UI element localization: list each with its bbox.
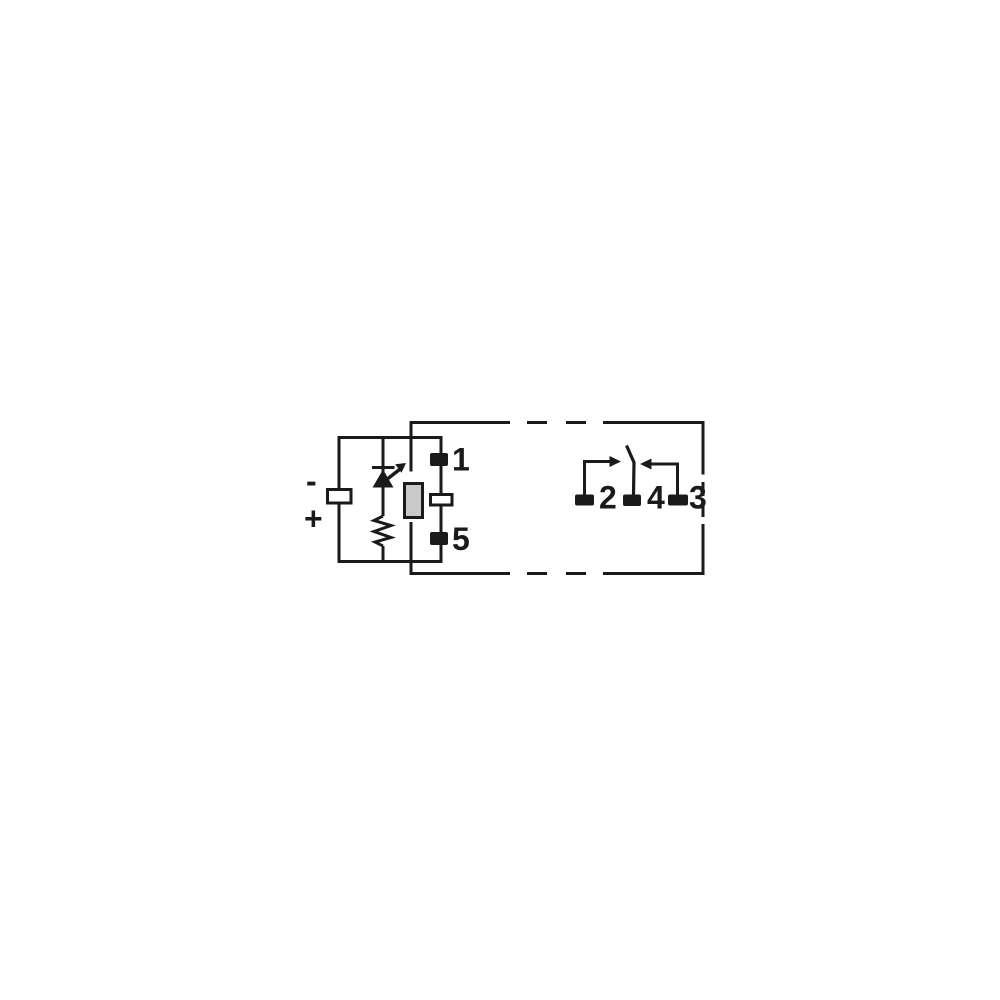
pin3-label: 3 <box>689 480 707 516</box>
input-circuit-loop <box>339 438 441 562</box>
relay-coil-icon <box>405 484 423 518</box>
polarity-minus-label: - <box>306 463 317 499</box>
contact-circuit <box>575 446 688 507</box>
polarity-plus-label: + <box>304 501 323 537</box>
pin2-label: 2 <box>599 480 617 516</box>
pin4-pad <box>623 495 641 507</box>
schematic-labels: - + 1 5 2 4 3 <box>304 442 707 558</box>
pin1-label: 1 <box>452 442 470 478</box>
relay-pinout-schematic: - + 1 5 2 4 3 <box>0 0 1000 1000</box>
pin5-label: 5 <box>452 521 470 557</box>
input-terminal-left <box>328 490 352 504</box>
pin3-pad <box>668 495 688 506</box>
input-terminal-right <box>431 495 453 506</box>
led-icon <box>372 463 406 488</box>
nc-contact-arrow-icon <box>640 459 652 470</box>
led-emission-arrow-shaft <box>388 470 400 479</box>
switch-lever-icon <box>627 446 635 496</box>
pin1-pad <box>430 453 448 466</box>
pin2-pad <box>575 495 594 506</box>
schematic-canvas: - + 1 5 2 4 3 <box>0 0 1000 1000</box>
pin4-label: 4 <box>647 480 665 516</box>
pin5-pad <box>430 532 448 545</box>
resistor-icon <box>374 516 391 546</box>
no-contact-arrow-icon <box>610 456 622 467</box>
